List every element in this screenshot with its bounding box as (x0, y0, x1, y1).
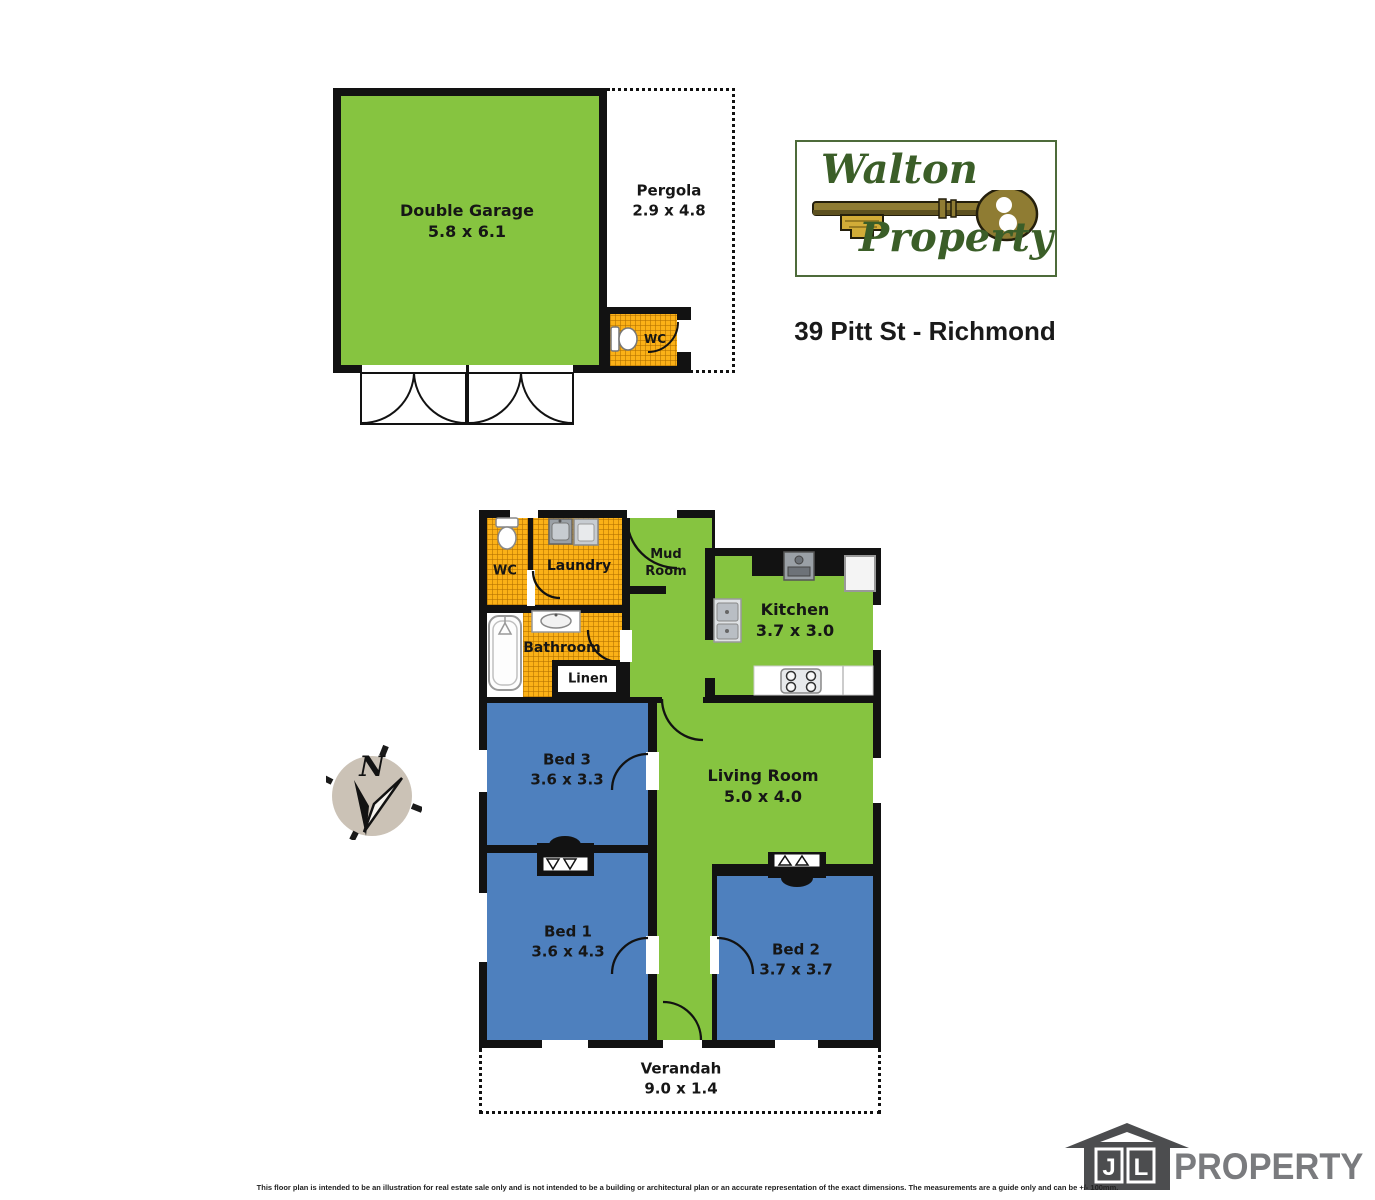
garage-door-opening-left (362, 365, 466, 374)
label-mud-room: Mud Room (645, 547, 686, 581)
label-garage-wc: WC (644, 332, 666, 348)
garage-door-opening-right (469, 365, 573, 374)
living-door-gap (662, 695, 703, 703)
compass-north-label: N (358, 750, 386, 783)
window-top-wc (510, 510, 538, 518)
label-kitchen: Kitchen 3.7 x 3.0 (756, 600, 834, 642)
disclaimer-text: This floor plan is intended to be an ill… (0, 1183, 1375, 1192)
walton-word-bottom: Property (859, 214, 1053, 261)
label-verandah: Verandah 9.0 x 1.4 (641, 1060, 722, 1099)
label-wc: WC (493, 564, 517, 581)
bathroom-door-opening (620, 630, 632, 662)
window-bottom-bed1 (542, 1040, 588, 1048)
bed3-door-opening (646, 752, 659, 790)
wc-door-opening (527, 570, 535, 606)
jl-letter-j: J (1102, 1154, 1115, 1181)
kitchen-hall-opening (705, 640, 715, 678)
room-wc (487, 518, 528, 605)
label-living-room: Living Room 5.0 x 4.0 (708, 766, 819, 808)
jl-letter-l: L (1134, 1154, 1149, 1181)
garage-wc-door-opening (677, 320, 691, 352)
walton-logo: Walton Property (795, 140, 1057, 277)
compass-icon: N (326, 744, 422, 840)
garage-doors-icon (361, 373, 573, 424)
kitchen-left-wall (705, 548, 715, 640)
room-mud-hall (630, 518, 712, 697)
jl-brand-text: PROPERTY (1174, 1146, 1363, 1188)
label-double-garage: Double Garage 5.8 x 6.1 (400, 201, 534, 243)
kitchen-wall-stub (705, 678, 713, 697)
outside-notch (715, 510, 881, 548)
property-address: 39 Pitt St - Richmond (794, 316, 1055, 347)
floor-plan-page: N Walton Property 39 Pitt St - Richmond … (0, 0, 1375, 1200)
window-left-bed1 (479, 893, 487, 962)
room-hall (657, 703, 712, 1040)
label-bed2: Bed 2 3.7 x 3.7 (759, 941, 832, 980)
label-pergola: Pergola 2.9 x 4.8 (632, 182, 705, 221)
label-bed3: Bed 3 3.6 x 3.3 (530, 751, 603, 790)
window-right-living (873, 758, 881, 803)
label-linen: Linen (568, 672, 608, 689)
mudroom-door-opening (627, 508, 677, 518)
label-bed1: Bed 1 3.6 x 4.3 (531, 923, 604, 962)
jl-house-icon: J L (1062, 1118, 1192, 1192)
walton-word-top: Walton (821, 146, 978, 193)
label-laundry: Laundry (547, 557, 611, 575)
window-right-kitchen (873, 605, 881, 650)
window-bottom-bed2 (775, 1040, 818, 1048)
mudroom-bottom-wall (625, 586, 666, 594)
bed2-door-opening (710, 936, 719, 974)
label-bathroom: Bathroom (523, 639, 601, 657)
front-door-opening (663, 1040, 702, 1048)
window-left-bed3 (479, 750, 487, 792)
bathtub-alcove (487, 613, 523, 697)
bed1-door-opening (646, 936, 659, 974)
